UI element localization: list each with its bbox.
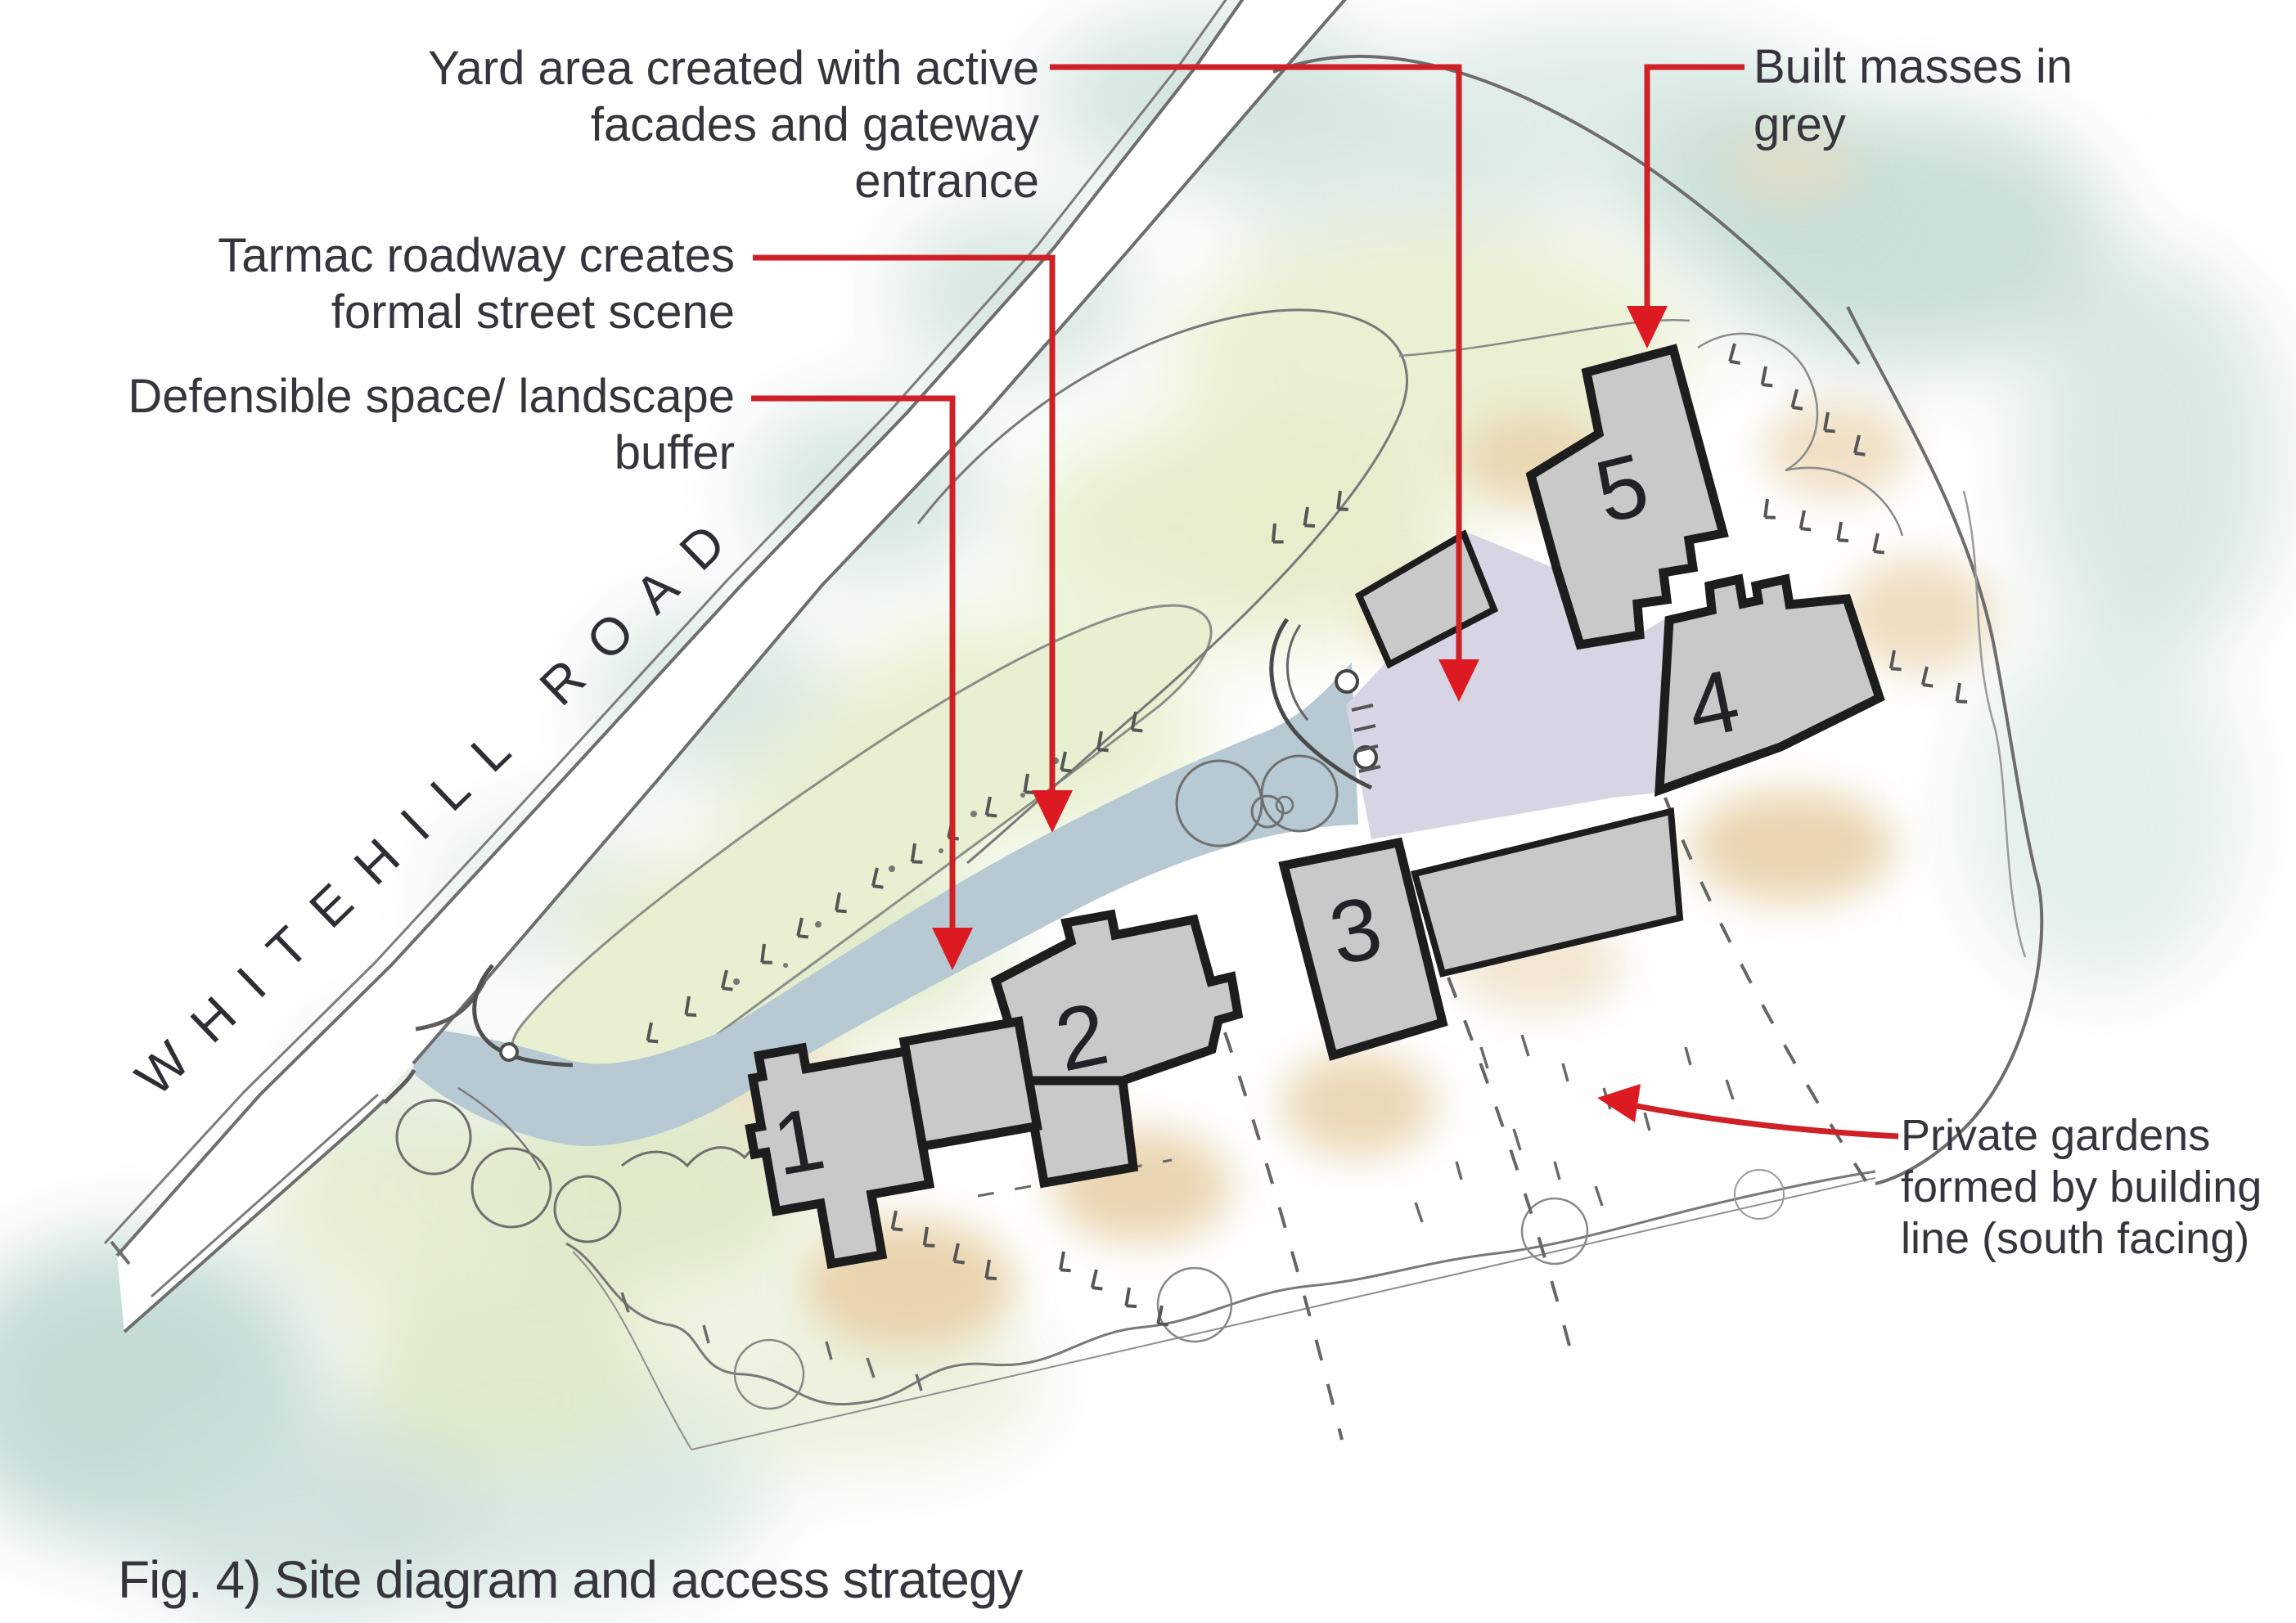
svg-text:Fig. 4) Site diagram and acces: Fig. 4) Site diagram and access strategy (118, 1550, 1023, 1609)
svg-text:Defensible space/ landscape: Defensible space/ landscape (128, 370, 735, 423)
svg-text:Private gardens: Private gardens (1901, 1111, 2210, 1160)
svg-text:Yard area created with active: Yard area created with active (428, 42, 1039, 95)
svg-text:formed by building: formed by building (1901, 1162, 2262, 1212)
svg-text:Built masses in: Built masses in (1754, 40, 2073, 93)
svg-text:buffer: buffer (615, 426, 735, 479)
svg-text:entrance: entrance (854, 155, 1039, 208)
svg-text:facades and gateway: facades and gateway (591, 98, 1039, 151)
svg-text:formal street scene: formal street scene (331, 285, 735, 339)
svg-text:line (south facing): line (south facing) (1901, 1214, 2249, 1263)
svg-text:grey: grey (1754, 98, 1846, 151)
svg-text:Tarmac roadway creates: Tarmac roadway creates (218, 229, 735, 282)
